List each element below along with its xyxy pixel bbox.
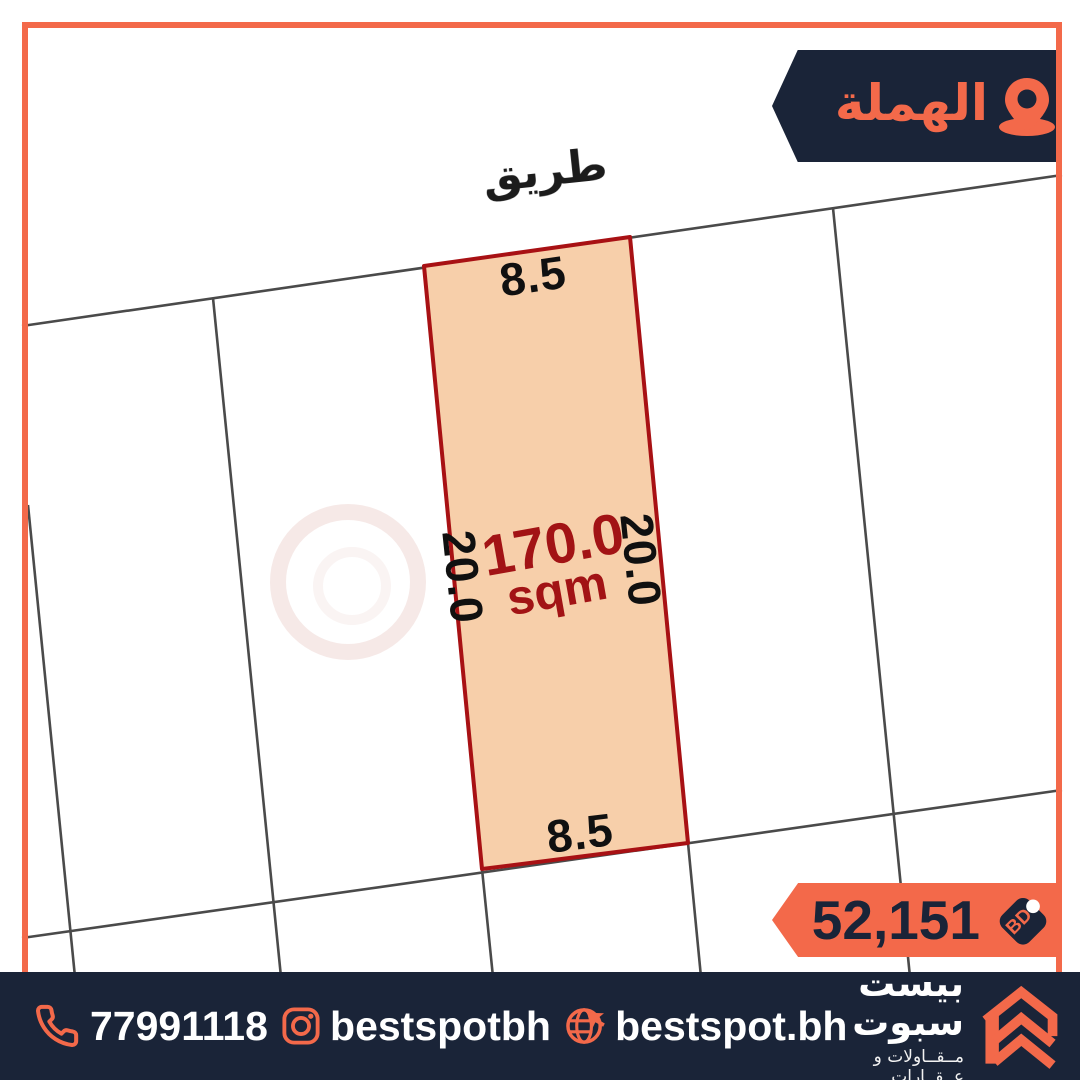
location-badge: الهملة [772,50,1058,162]
price-badge: 52,151 BD [772,883,1062,957]
price-amount: 52,151 [812,893,980,948]
instagram-contact[interactable]: bestspotbh [280,1003,551,1050]
map-pin-icon [998,76,1056,136]
parcel-line [482,869,493,977]
parcel-line [28,505,75,977]
instagram-handle[interactable]: bestspotbh [330,1003,551,1050]
parcel-line [833,208,910,977]
company-logo-icon [978,978,1060,1074]
website-url[interactable]: bestspot.bh [615,1003,847,1050]
stamp-watermark [278,512,418,652]
globe-cursor-icon [563,1004,607,1048]
location-name: الهملة [835,78,988,134]
company-name: بيست سبوت [847,965,964,1043]
plot-width-top-label: 8.5 [496,245,570,308]
website-contact[interactable]: bestspot.bh [563,1003,847,1050]
price-tag-icon: BD [992,889,1054,951]
stamp-watermark-inner [318,552,386,620]
ad-canvas: طريق 8.5 8.5 20.0 20.0 170.0 sqm الهملة … [0,0,1080,1080]
parcel-line [213,298,281,977]
plot-width-bottom-label: 8.5 [543,802,616,864]
parcel-line [688,843,701,977]
company-brand: بيست سبوت مــقــاولات و عــقــارات [847,965,964,1080]
phone-icon [34,1003,80,1049]
footer-bar: 77991118 bestspotbh bestspot.bh بيست [0,972,1080,1080]
instagram-icon [280,1005,322,1047]
company-tagline: مــقــاولات و عــقــارات [847,1047,964,1080]
phone-number[interactable]: 77991118 [90,1003,268,1050]
phone-contact[interactable]: 77991118 [34,1003,268,1050]
